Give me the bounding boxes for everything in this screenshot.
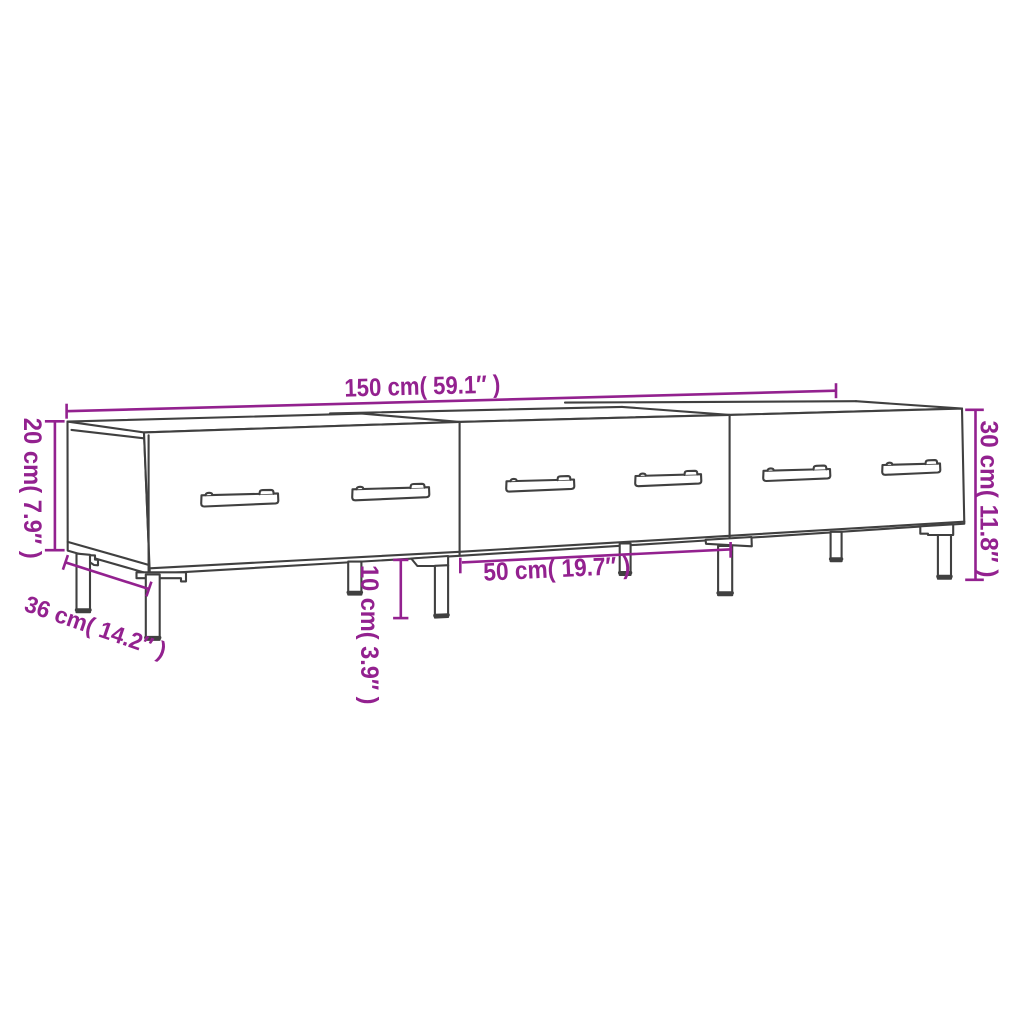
svg-text:30 cm( 11.8″ ): 30 cm( 11.8″ )	[974, 421, 1002, 578]
svg-text:10 cm( 3.9″ ): 10 cm( 3.9″ )	[355, 565, 383, 705]
svg-text:20 cm( 7.9″ ): 20 cm( 7.9″ )	[18, 418, 46, 559]
svg-text:150 cm( 59.1″ ): 150 cm( 59.1″ )	[344, 371, 501, 403]
